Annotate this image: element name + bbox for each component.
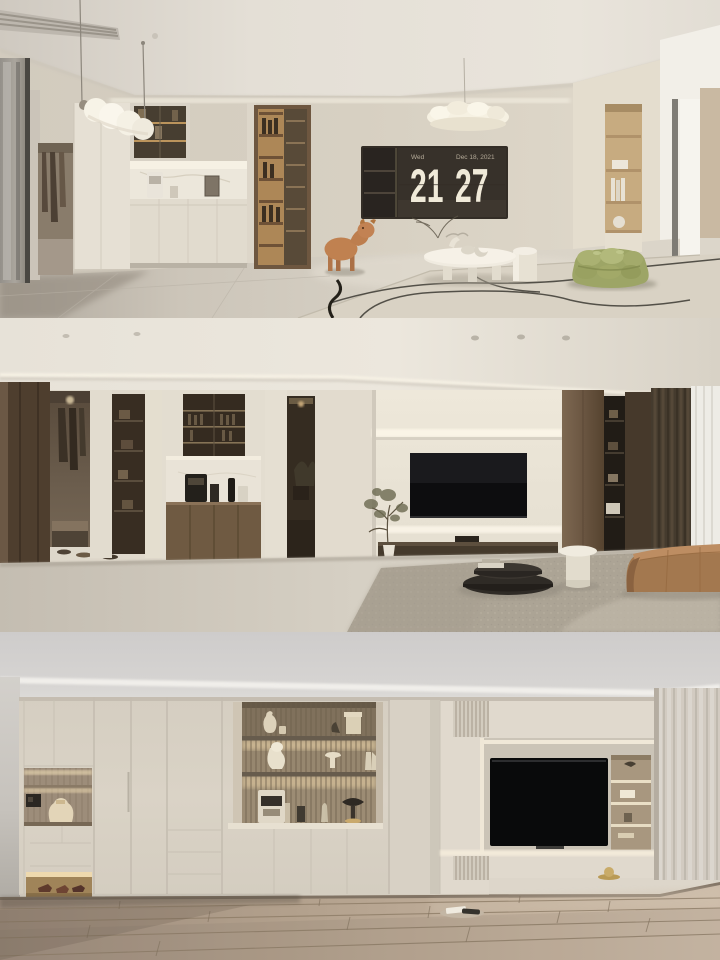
svg-text:21: 21	[410, 160, 443, 212]
svg-text:27: 27	[455, 160, 488, 212]
